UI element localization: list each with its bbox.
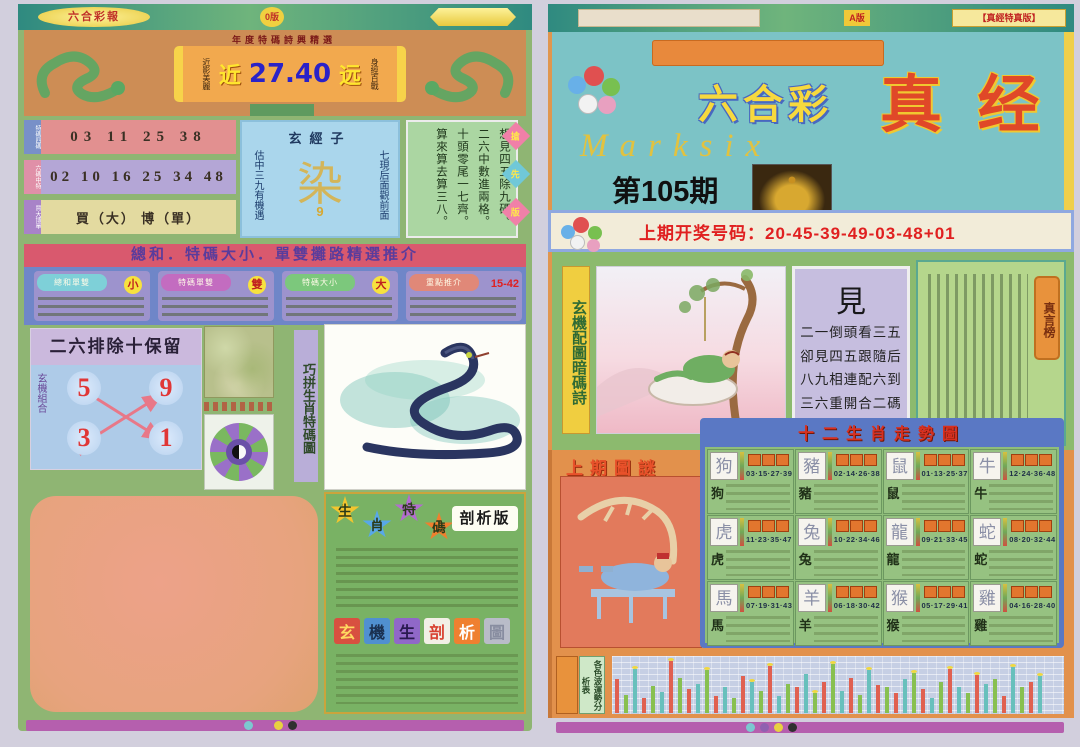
- masthead-title-en: Marksix: [580, 128, 772, 165]
- zodiac-badge: [1011, 454, 1052, 466]
- reco-box-double: 特碼單雙 雙: [158, 271, 274, 321]
- zodiac-card: 雞04·16·28·40雞: [970, 581, 1057, 646]
- zodiac-card: 蛇08·20·32·44蛇: [970, 515, 1057, 580]
- riddle-line: 卻見四五跟隨后: [795, 345, 907, 369]
- zodiac-note: [902, 616, 966, 642]
- zodiac-color-strip: [916, 518, 920, 546]
- wave-bar: [705, 670, 709, 713]
- masthead-title-big: 真 经: [880, 54, 1050, 144]
- tip-row-1-label: 特碼四碼: [24, 120, 41, 154]
- zodiac-title: 十二生肖走勢圖: [705, 423, 1059, 447]
- wave-bar: [804, 674, 808, 713]
- wave-bar: [660, 692, 664, 713]
- wave-bar: [678, 678, 682, 713]
- analysis-square: 機: [364, 618, 390, 644]
- odds-scroll-banner: 近影美麗 近 27.40 远 身經百戰: [174, 46, 406, 102]
- wave-bar: [741, 676, 745, 713]
- tip-row-2-numbers: 02 10 16 25 34 48: [41, 160, 236, 194]
- left-footer-bar: [26, 720, 524, 731]
- near-label: 近: [219, 58, 241, 90]
- zodiac-card: 馬07·19·31·43馬: [707, 581, 794, 646]
- zodiac-card: 兔10·22·34·46兔: [795, 515, 882, 580]
- wave-bar-tip: [1010, 664, 1016, 667]
- analysis-square: 剖: [424, 618, 450, 644]
- zodiac-animal-icon: 鼠: [886, 452, 914, 480]
- zodiac-name: 馬: [711, 615, 724, 634]
- truth-board-text: [928, 274, 1028, 434]
- reco-pill: 特碼單雙: [161, 274, 231, 291]
- wave-bar: [876, 685, 880, 713]
- divider: [560, 646, 702, 648]
- poem-line: 二六中數進兩格。: [475, 128, 491, 230]
- zodiac-note: [814, 484, 878, 510]
- footer-dot: [244, 721, 253, 730]
- wave-section: 各色波運勢分析表: [548, 654, 1074, 718]
- reco-box-small: 總和單雙 小: [34, 271, 150, 321]
- wave-bar-tip: [1037, 673, 1043, 676]
- zodiac-note: [989, 550, 1053, 576]
- zodiac-color-strip: [828, 452, 832, 480]
- bagua-wheel-icon: [210, 423, 268, 481]
- masthead-title-cn: 六合彩: [698, 72, 833, 130]
- wave-bar: [993, 679, 997, 713]
- zodiac-numbers: 04·16·28·40: [1009, 601, 1055, 610]
- reco-fineprint: [38, 297, 144, 317]
- zodiac-animal-icon: 猴: [886, 584, 914, 612]
- left-brand-badge: 六合彩報: [38, 7, 150, 27]
- wave-bar: [939, 682, 943, 713]
- zodiac-color-strip: [740, 518, 744, 546]
- wave-bar: [867, 670, 871, 713]
- reco-strip: 總和單雙 小 特碼單雙 雙 特碼大小 大 重點推介 15-42: [24, 267, 526, 325]
- zodiac-badge: [748, 520, 789, 532]
- issue-number: 第105期: [612, 168, 718, 210]
- zodiac-numbers: 07·19·31·43: [746, 601, 792, 610]
- zodiac-numbers: 02·14·26·38: [834, 469, 880, 478]
- poem-line: 十頭零尾一七齊。: [454, 128, 470, 230]
- zodiac-animal-icon: 馬: [710, 584, 738, 612]
- zodiac-color-strip: [828, 584, 832, 612]
- wave-bar: [696, 684, 700, 713]
- wave-bar: [1029, 682, 1033, 713]
- zodiac-grid: 狗03·15·27·39狗豬02·14·26·38豬鼠01·13·25·37鼠牛…: [705, 447, 1059, 648]
- right-version-tag: 【真經特真版】: [952, 9, 1066, 27]
- puzzle-image-icon: [561, 477, 701, 647]
- wave-bar: [795, 687, 799, 713]
- poem-line: 算來算去算三八。: [433, 128, 449, 230]
- mystic-sub-char: 9: [242, 204, 398, 219]
- footer-dot: [288, 721, 297, 730]
- keep-number: 1: [149, 421, 183, 455]
- zodiac-animal-icon: 羊: [798, 584, 826, 612]
- zodiac-color-strip: [916, 584, 920, 612]
- zodiac-numbers: 09·21·33·45: [922, 535, 968, 544]
- wave-bar-tip: [749, 679, 755, 682]
- right-page-topbar: A版 【真經特真版】: [548, 4, 1074, 32]
- zodiac-panel: 十二生肖走勢圖 狗03·15·27·39狗豬02·14·26·38豬鼠01·13…: [700, 418, 1064, 648]
- analysis-paragraph: [336, 654, 518, 704]
- poem-box: 想見四五除九碼。 二六中數進兩格。 十頭零尾一七齊。 算來算去算三八。: [406, 120, 518, 238]
- reco-fineprint: [162, 297, 268, 317]
- blank-puzzle-area: [30, 496, 318, 712]
- zodiac-color-strip: [740, 452, 744, 480]
- edition-tag: 剖析版: [452, 506, 518, 531]
- zodiac-badge: [836, 454, 877, 466]
- wave-bar: [1011, 667, 1015, 713]
- treasure-photo: [752, 164, 832, 216]
- zodiac-color-strip: [1003, 452, 1007, 480]
- star-badge: 肖: [362, 510, 392, 540]
- zodiac-badge: [1011, 586, 1052, 598]
- reco-value-coin: 雙: [248, 276, 266, 294]
- wave-bar: [984, 684, 988, 713]
- wave-bar: [651, 686, 655, 713]
- far-label: 远: [339, 58, 361, 90]
- zodiac-color-strip: [828, 518, 832, 546]
- wave-bar: [714, 696, 718, 713]
- wave-bar: [912, 673, 916, 713]
- wave-bar: [840, 691, 844, 713]
- reco-box-big: 特碼大小 大: [282, 271, 398, 321]
- wave-bar: [966, 693, 970, 713]
- wave-bar-tip: [911, 670, 917, 673]
- footer-dot: [274, 721, 283, 730]
- wave-bar-tip: [947, 666, 953, 669]
- zodiac-name: 豬: [799, 483, 812, 502]
- wave-bar-tip: [812, 690, 818, 693]
- zodiac-name: 虎: [711, 549, 724, 568]
- wave-bar: [903, 679, 907, 713]
- wave-bar: [948, 669, 952, 713]
- zodiac-wheel-image: [204, 414, 274, 490]
- zodiac-name: 鼠: [887, 483, 900, 502]
- wave-bar: [975, 675, 979, 713]
- analysis-paragraph: [336, 548, 518, 610]
- zodiac-badge: [924, 454, 965, 466]
- wave-bar: [642, 698, 646, 713]
- zodiac-card: 羊06·18·30·42羊: [795, 581, 882, 646]
- wave-bar: [858, 695, 862, 713]
- zodiac-color-strip: [916, 452, 920, 480]
- zodiac-card: 猴05·17·29·41猴: [883, 581, 970, 646]
- analysis-square: 玄: [334, 618, 360, 644]
- zodiac-note: [726, 616, 790, 642]
- dragon-icon: [410, 38, 520, 110]
- wave-bar: [813, 693, 817, 713]
- zodiac-note: [902, 550, 966, 576]
- scroll-right-note: 身經百戰: [369, 58, 379, 90]
- analysis-panel: 生 肖 特 碼 剖析版 玄機生剖析圖: [324, 492, 526, 714]
- masthead-sub-badge: [250, 104, 314, 116]
- riddle-big-char: 見: [795, 277, 907, 321]
- zodiac-name: 雞: [974, 615, 987, 634]
- mystic-box: 玄經子 估中三九有機遇 七現后面觀前面 染 9: [240, 120, 400, 238]
- riddle-line: 二一倒頭看三五: [795, 321, 907, 345]
- zodiac-name: 狗: [711, 483, 724, 502]
- wave-bar: [1002, 696, 1006, 713]
- tip-row-3-label: 買大博單: [24, 200, 41, 234]
- wave-bar-tip: [767, 663, 773, 666]
- wave-bar: [849, 678, 853, 713]
- zodiac-note: [726, 484, 790, 510]
- zodiac-numbers: 11·23·35·47: [746, 535, 792, 544]
- zodiac-note: [989, 484, 1053, 510]
- reco-fineprint: [410, 297, 516, 317]
- topbar-blank-box: [578, 9, 760, 27]
- zodiac-badge: [924, 586, 965, 598]
- reco-pill: 特碼大小: [285, 274, 355, 291]
- jade-carving-image: [204, 326, 274, 398]
- right-edition-chip: A版: [844, 10, 870, 26]
- zodiac-card: 鼠01·13·25·37鼠: [883, 449, 970, 514]
- sage-painting-icon: [597, 267, 785, 433]
- exclude-body: 玄機組合 5 9 3 1: [31, 365, 201, 469]
- zodiac-animal-icon: 狗: [710, 452, 738, 480]
- yinyang-icon: [232, 445, 246, 459]
- masthead-tagline: 年度特碼詩興精選: [154, 33, 414, 46]
- dragon-icon: [30, 38, 140, 110]
- footer-dot: [788, 723, 797, 732]
- tip-row-3-numbers: 買（大） 博（單）: [41, 200, 236, 234]
- zodiac-color-strip: [1003, 518, 1007, 546]
- wave-bar: [750, 682, 754, 713]
- last-puzzle-image: [560, 476, 702, 648]
- wave-bar: [624, 695, 628, 713]
- zodiac-animal-icon: 牛: [973, 452, 1001, 480]
- zodiac-note: [989, 616, 1053, 642]
- right-footer-bar: [556, 722, 1064, 733]
- sage-painting: [596, 266, 786, 434]
- footer-dot: [760, 723, 769, 732]
- zodiac-animal-icon: 虎: [710, 518, 738, 546]
- zodiac-name: 羊: [799, 615, 812, 634]
- zodiac-name: 牛: [974, 483, 987, 502]
- snake-strip-label: 巧拼生肖特碼圖: [294, 330, 318, 482]
- zodiac-card: 豬02·14·26·38豬: [795, 449, 882, 514]
- wave-bar-tip: [704, 667, 710, 670]
- zodiac-badge: [836, 586, 877, 598]
- star-badge: 碼: [424, 512, 454, 542]
- right-page: A版 【真經特真版】 六合彩 真 经 Marksix 第105期: [548, 4, 1074, 735]
- zodiac-numbers: 01·13·25·37: [922, 469, 968, 478]
- exclude-box: 二六排除十保留 玄機組合 5 9 3 1: [30, 328, 202, 470]
- right-masthead: 六合彩 真 经 Marksix 第105期: [548, 32, 1074, 210]
- wave-bar: [615, 679, 619, 713]
- wave-bar-tip: [866, 667, 872, 670]
- last-draw-numbers: 上期开奖号码：20-45-39-49-03-48+01: [639, 219, 956, 244]
- newspaper-scan: 六合彩報 0版 年度特碼詩興精選 近影美麗 近 27.40 远 身經百戰: [0, 0, 1080, 747]
- left-edition-chip: 0版: [260, 7, 284, 27]
- zodiac-badge: [836, 520, 877, 532]
- zodiac-badge: [1011, 520, 1052, 532]
- zodiac-numbers: 12·24·36·48: [1009, 469, 1055, 478]
- wave-bars: [612, 656, 1064, 714]
- last-draw-row: 上期开奖号码：20-45-39-49-03-48+01: [548, 210, 1074, 252]
- truth-board-badge: 真言榜: [1034, 276, 1060, 360]
- zodiac-animal-icon: 蛇: [973, 518, 1001, 546]
- wave-bar: [885, 687, 889, 713]
- zodiac-name: 蛇: [974, 549, 987, 568]
- tip-row-2: 六碼中特 02 10 16 25 34 48: [24, 160, 236, 194]
- reco-box-range: 重點推介 15-42: [406, 271, 522, 321]
- wave-bar: [633, 669, 637, 713]
- wave-bar: [831, 664, 835, 713]
- analysis-squares: 玄機生剖析圖: [334, 618, 514, 644]
- wave-bar: [768, 666, 772, 713]
- zodiac-color-strip: [1003, 584, 1007, 612]
- wave-side-box: [556, 656, 578, 714]
- zodiac-numbers: 08·20·32·44: [1009, 535, 1055, 544]
- wave-bar: [921, 689, 925, 713]
- star-badge: 特: [394, 494, 424, 524]
- wave-bar-tip: [668, 658, 674, 661]
- zodiac-card: 虎11·23·35·47虎: [707, 515, 794, 580]
- zodiac-note: [814, 550, 878, 576]
- selection-banner: 總和．特碼大小．單雙攤路精選推介: [24, 244, 526, 267]
- exclude-title: 二六排除十保留: [31, 329, 201, 365]
- wave-bar-tip: [632, 666, 638, 669]
- exclude-side-label: 玄機組合: [33, 373, 48, 413]
- wave-bar: [669, 661, 673, 713]
- keep-number: 9: [149, 371, 183, 405]
- zodiac-name: 猴: [887, 615, 900, 634]
- zodiac-badge: [748, 586, 789, 598]
- wave-label: 各色波運勢分析表: [579, 656, 605, 714]
- zodiac-animal-icon: 兔: [798, 518, 826, 546]
- zodiac-note: [814, 616, 878, 642]
- snake-icon: [325, 325, 527, 491]
- reco-pill: 總和單雙: [37, 274, 107, 291]
- lottery-balls-icon: [568, 66, 638, 126]
- wave-bar: [687, 689, 691, 713]
- footer-dot: [746, 723, 755, 732]
- riddle-strip-label: 玄機配圖暗碼詩: [562, 266, 590, 434]
- zodiac-color-strip: [740, 584, 744, 612]
- scroll-left-note: 近影美麗: [201, 58, 211, 90]
- zodiac-numbers: 06·18·30·42: [834, 601, 880, 610]
- zodiac-name: 兔: [799, 549, 812, 568]
- left-page-topbar: 六合彩報 0版: [18, 4, 532, 30]
- zodiac-card: 狗03·15·27·39狗: [707, 449, 794, 514]
- analysis-square: 析: [454, 618, 480, 644]
- zodiac-card: 龍09·21·33·45龍: [883, 515, 970, 580]
- zodiac-note: [726, 550, 790, 576]
- arrow-banner-icon: [430, 8, 516, 26]
- reco-value-coin: 大: [372, 276, 390, 294]
- snake-painting: [324, 324, 526, 490]
- star-badge: 生: [330, 496, 360, 526]
- zodiac-card: 牛12·24·36·48牛: [970, 449, 1057, 514]
- wave-bar: [822, 682, 826, 713]
- zodiac-animal-icon: 豬: [798, 452, 826, 480]
- zodiac-numbers: 03·15·27·39: [746, 469, 792, 478]
- zodiac-animal-icon: 龍: [886, 518, 914, 546]
- analysis-square: 生: [394, 618, 420, 644]
- tip-row-1: 特碼四碼 03 11 25 38: [24, 120, 236, 154]
- tip-row-1-numbers: 03 11 25 38: [41, 120, 236, 154]
- riddle-box: 見 二一倒頭看三五 卻見四五跟隨后 八九相連配六到 三六重開合二碼: [792, 266, 910, 434]
- odds-value: 27.40: [249, 59, 331, 89]
- keep-number: 5: [67, 371, 101, 405]
- reco-value-coin: 小: [124, 276, 142, 294]
- zodiac-badge: [924, 520, 965, 532]
- zodiac-animal-icon: 雞: [973, 584, 1001, 612]
- footer-dot: [774, 723, 783, 732]
- left-masthead: 年度特碼詩興精選 近影美麗 近 27.40 远 身經百戰: [24, 30, 526, 116]
- wave-bar: [786, 684, 790, 713]
- zodiac-badge: [748, 454, 789, 466]
- wave-bar: [759, 691, 763, 713]
- lottery-balls-icon: [561, 217, 625, 251]
- reco-pill: 重點推介: [409, 274, 479, 291]
- reco-range-value: 15-42: [491, 278, 519, 290]
- wave-bar: [1038, 676, 1042, 713]
- zodiac-note: [902, 484, 966, 510]
- riddle-line: 三六重開合二碼: [795, 392, 907, 416]
- riddle-line: 八九相連配六到: [795, 368, 907, 392]
- wave-bar-tip: [830, 661, 836, 664]
- small-red-caption: [204, 402, 274, 411]
- wave-bar: [777, 696, 781, 713]
- wave-bar: [732, 698, 736, 713]
- wave-bar-tip: [974, 672, 980, 675]
- mystic-title: 玄經子: [242, 128, 398, 147]
- zodiac-numbers: 05·17·29·41: [922, 601, 968, 610]
- wave-bar: [894, 693, 898, 713]
- wave-bar: [723, 687, 727, 713]
- left-page: 六合彩報 0版 年度特碼詩興精選 近影美麗 近 27.40 远 身經百戰: [18, 4, 532, 731]
- wave-bar: [957, 687, 961, 713]
- keep-number: 3: [67, 421, 101, 455]
- wave-bar: [930, 698, 934, 713]
- zodiac-numbers: 10·22·34·46: [834, 535, 880, 544]
- masthead-orange-banner: [652, 40, 884, 66]
- tip-row-3: 買大博單 買（大） 博（單）: [24, 200, 236, 234]
- analysis-square: 圖: [484, 618, 510, 644]
- wave-bar: [1020, 687, 1024, 713]
- reco-fineprint: [286, 297, 392, 317]
- tip-row-2-label: 六碼中特: [24, 160, 41, 194]
- zodiac-name: 龍: [887, 549, 900, 568]
